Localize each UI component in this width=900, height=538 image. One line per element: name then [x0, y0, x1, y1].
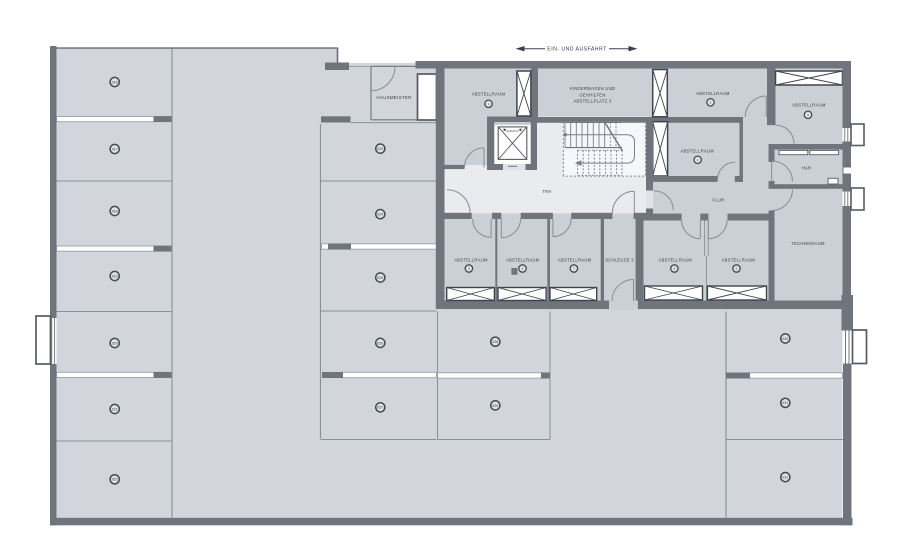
svg-text:016: 016	[112, 80, 118, 84]
svg-text:HAR: HAR	[802, 166, 812, 171]
svg-text:030: 030	[782, 337, 788, 341]
svg-text:KINDERWAGEN UND: KINDERWAGEN UND	[570, 86, 615, 91]
svg-text:021: 021	[112, 407, 118, 411]
svg-text:024: 024	[377, 213, 383, 217]
svg-text:ABSTELLRAUM: ABSTELLRAUM	[792, 102, 826, 107]
svg-text:ABSTELLRAUM: ABSTELLRAUM	[454, 258, 488, 263]
svg-text:HAUSMEISTER: HAUSMEISTER	[376, 95, 412, 100]
svg-text:ABSTELLPLATZ 3: ABSTELLPLATZ 3	[573, 99, 612, 104]
svg-text:TRH: TRH	[542, 189, 551, 194]
svg-text:022: 022	[112, 478, 118, 482]
svg-text:ABSTELLRAUM: ABSTELLRAUM	[680, 149, 714, 154]
svg-text:EIN- UND AUSFAHRT: EIN- UND AUSFAHRT	[547, 47, 607, 53]
svg-text:AUFZUG: AUFZUG	[506, 129, 519, 133]
svg-text:025: 025	[377, 276, 383, 280]
svg-text:032: 032	[782, 476, 788, 480]
svg-text:023: 023	[377, 147, 383, 151]
svg-text:020: 020	[112, 341, 118, 345]
svg-text:TECHNIKRAUM: TECHNIKRAUM	[791, 241, 825, 246]
svg-text:017: 017	[112, 147, 118, 151]
svg-text:ABSTELLRAUM: ABSTELLRAUM	[722, 258, 756, 263]
svg-text:ABSTELLRAUM: ABSTELLRAUM	[472, 92, 506, 97]
svg-text:019: 019	[112, 274, 118, 278]
svg-text:SCHLEUSE 3: SCHLEUSE 3	[605, 258, 634, 263]
svg-text:031: 031	[782, 401, 788, 405]
svg-text:018: 018	[112, 209, 118, 213]
svg-text:ABSTELLRAUM: ABSTELLRAUM	[696, 91, 730, 96]
svg-text:027: 027	[377, 406, 383, 410]
svg-text:GEHHILFEN: GEHHILFEN	[579, 92, 605, 97]
svg-text:ABSTELLRAUM: ABSTELLRAUM	[558, 258, 592, 263]
svg-text:ABSTELLRAUM: ABSTELLRAUM	[506, 258, 540, 263]
svg-text:029: 029	[492, 404, 498, 408]
svg-text:028: 028	[492, 340, 498, 344]
svg-text:026: 026	[377, 341, 383, 345]
svg-text:ABSTELLRAUM: ABSTELLRAUM	[659, 258, 693, 263]
svg-text:FLUR: FLUR	[713, 198, 725, 203]
